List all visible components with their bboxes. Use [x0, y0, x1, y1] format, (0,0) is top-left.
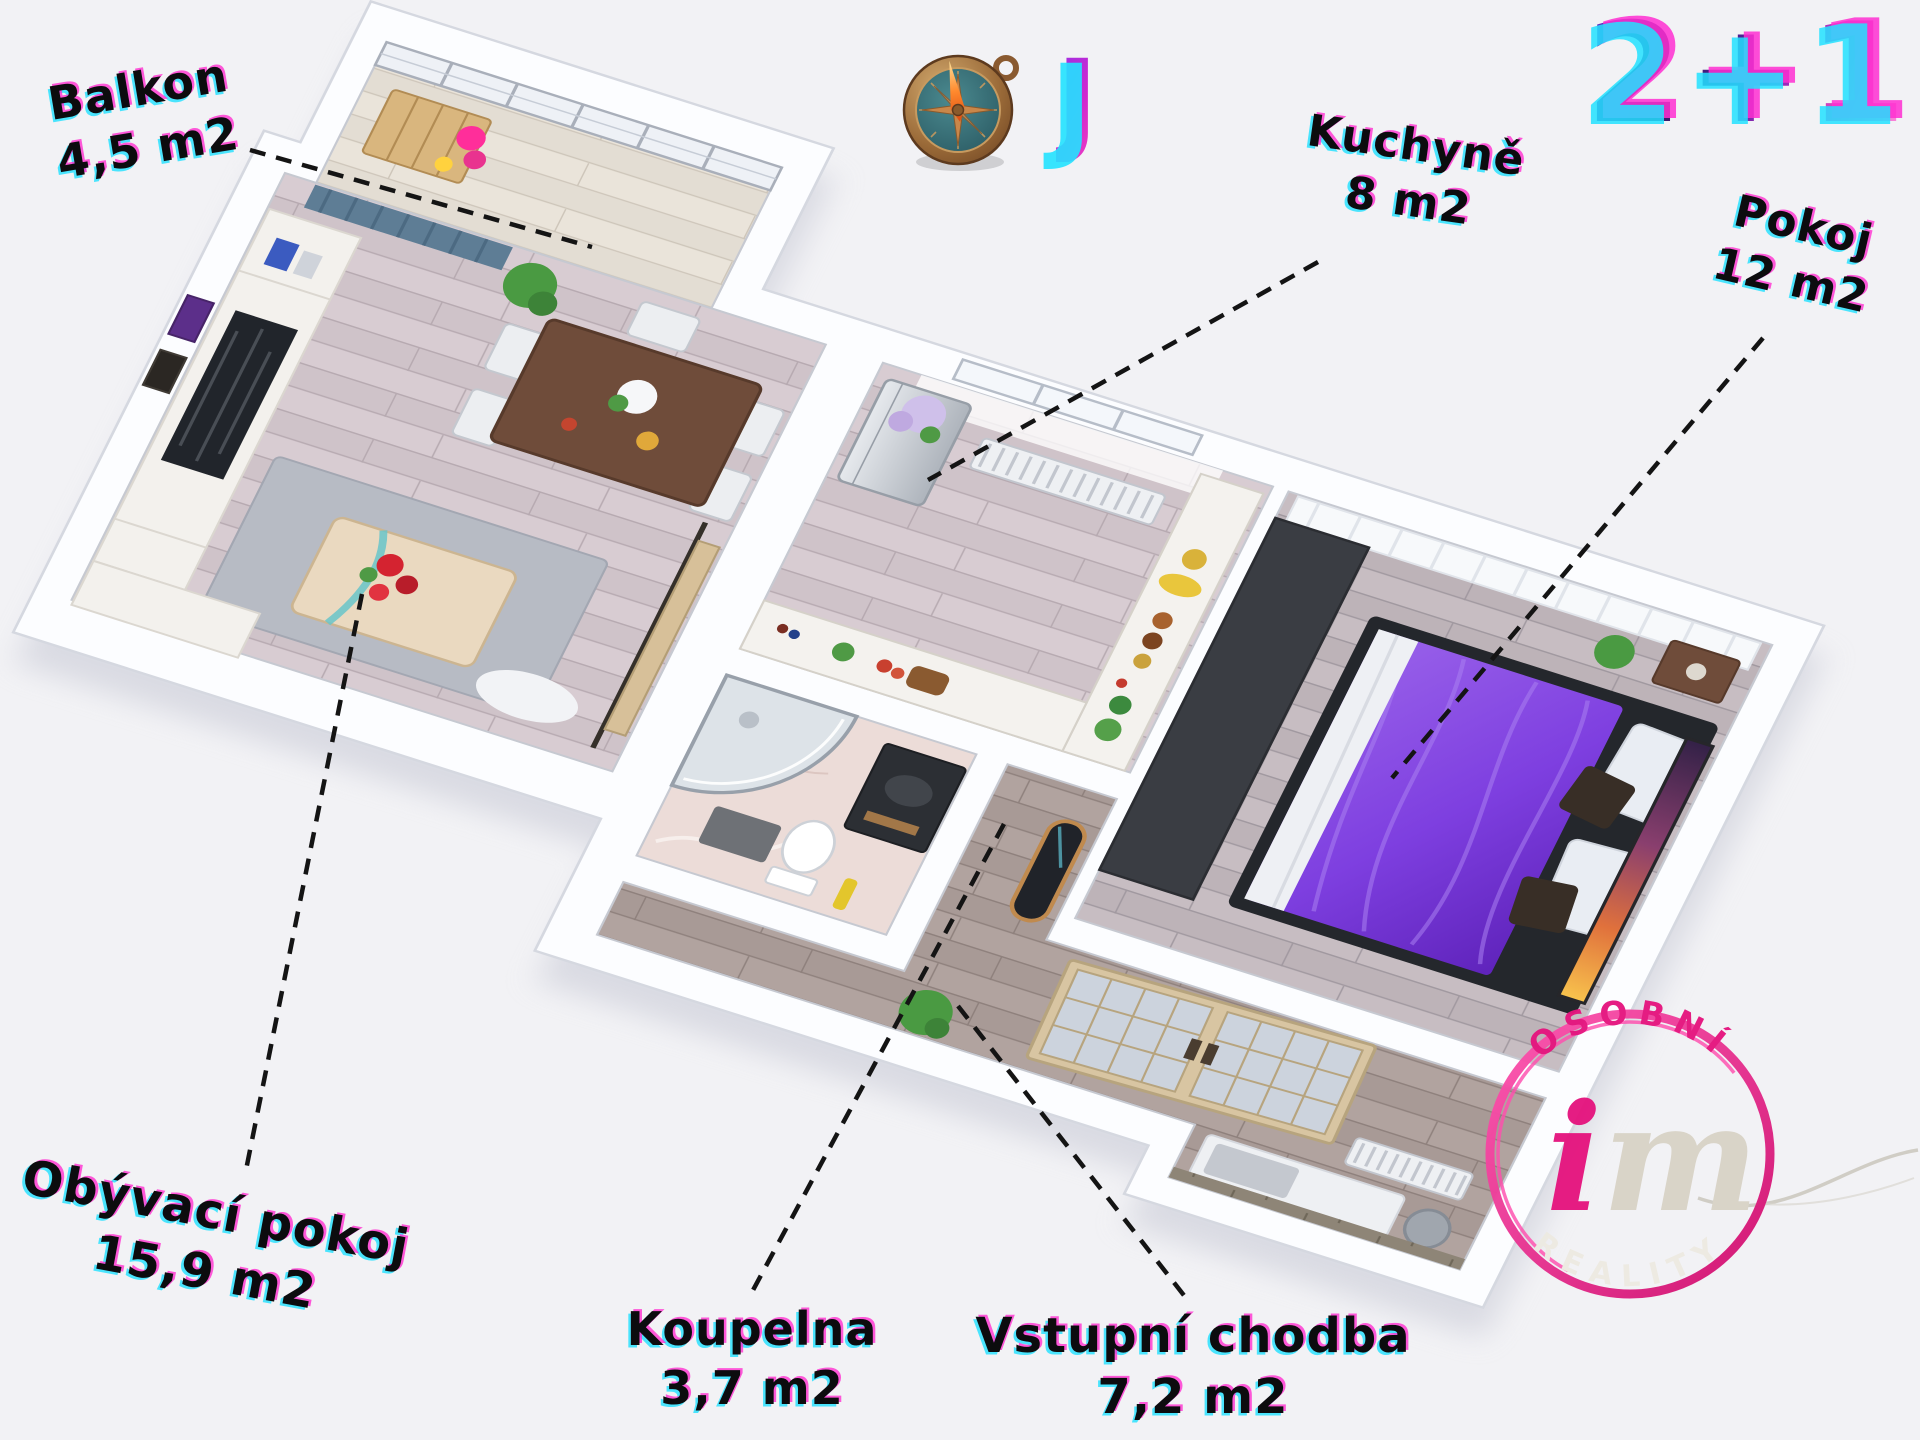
- room-label-koupelna-area: 3,7 m2: [592, 1359, 912, 1418]
- shower: [672, 675, 857, 826]
- room-bathroom: [637, 675, 977, 935]
- stone-accent-wall: [1169, 1167, 1465, 1270]
- laundry-basket: [1398, 1205, 1457, 1253]
- bath-rug: [697, 805, 782, 863]
- room-label-kuchyne: Kuchyně 8 m2: [1275, 100, 1548, 248]
- compass-direction-letter: J: [1056, 42, 1098, 162]
- balcony-glazing: [375, 42, 782, 190]
- room-living: [38, 163, 826, 776]
- bedroom-curtains: [1285, 497, 1761, 670]
- hall-plant: [890, 983, 961, 1041]
- cleaning-mop: [831, 877, 858, 911]
- plan-type-badge: 2+1: [1586, 2, 1912, 147]
- kitchen-counter-bottom: [740, 600, 1087, 751]
- hall-radiator: [1344, 1137, 1474, 1200]
- logo-arc-top-text: OSOBNÍ: [1521, 992, 1741, 1066]
- dining-table: [451, 267, 813, 523]
- room-label-koupelna-name: Koupelna: [592, 1300, 912, 1359]
- room-label-vstupni-name: Vstupní chodba: [968, 1306, 1418, 1367]
- compass-icon: [896, 46, 1028, 176]
- room-label-balkon: Balkon 4,5 m2: [10, 40, 276, 197]
- logo-monogram-m: m: [1602, 1071, 1759, 1245]
- bedroom-plant: [1588, 630, 1641, 674]
- barn-door: [593, 523, 729, 756]
- kitchen-counter-right: [1062, 474, 1263, 771]
- living-curtain: [304, 185, 513, 271]
- leader-kuchyne: [928, 262, 1318, 480]
- room-bedroom: [1075, 491, 1772, 1071]
- fridge: [837, 378, 973, 506]
- room-hall: [571, 675, 1616, 1270]
- room-label-pokoj: Pokoj 12 m2: [1672, 174, 1920, 335]
- toilet: [764, 815, 843, 896]
- kitchen-radiator: [969, 438, 1166, 526]
- wall-art-frame: [143, 350, 187, 393]
- compass: [896, 46, 1028, 176]
- leader-vstupni: [958, 1006, 1186, 1298]
- agency-logo-graphic: OSOBNÍ REALITY im: [1462, 992, 1920, 1337]
- wall-art-purple: [168, 295, 213, 342]
- kitchen-window: [907, 350, 1235, 499]
- double-bed: [1226, 615, 1720, 1016]
- room-kitchen: [740, 338, 1285, 772]
- logo-monogram: im: [1546, 1071, 1759, 1245]
- wall-mirror: [1006, 817, 1090, 925]
- entry-bench: [1188, 1134, 1459, 1254]
- leader-pokoj: [1392, 338, 1763, 778]
- living-plant: [495, 256, 566, 314]
- vanity-sink: [843, 743, 966, 853]
- nightstand: [1651, 640, 1741, 704]
- floorplan-page: { "plan": { "type": "2+1" }, "compass": …: [0, 0, 1920, 1440]
- room-label-koupelna: Koupelna 3,7 m2: [592, 1300, 912, 1418]
- room-label-vstupni-chodba: Vstupní chodba 7,2 m2: [968, 1306, 1418, 1429]
- entry-door-glass: [1026, 960, 1376, 1145]
- area-rug: [199, 456, 609, 716]
- leader-obyvaci: [246, 594, 362, 1170]
- room-label-obyvaci-pokoj: Obývací pokoj 15,9 m2: [2, 1147, 418, 1341]
- room-balcony: [316, 42, 782, 308]
- tv-wall-unit: [71, 209, 435, 658]
- room-label-vstupni-area: 7,2 m2: [968, 1367, 1418, 1428]
- wardrobe: [1099, 518, 1369, 900]
- coffee-table: [274, 516, 629, 734]
- pallet-planter: [362, 89, 505, 188]
- leader-koupelna: [752, 824, 1004, 1292]
- agency-logo: OSOBNÍ REALITY im: [1462, 992, 1920, 1337]
- tv-sunset-art: [1559, 738, 1713, 1003]
- logo-monogram-i: i: [1546, 1071, 1602, 1245]
- leader-balkon: [250, 150, 592, 247]
